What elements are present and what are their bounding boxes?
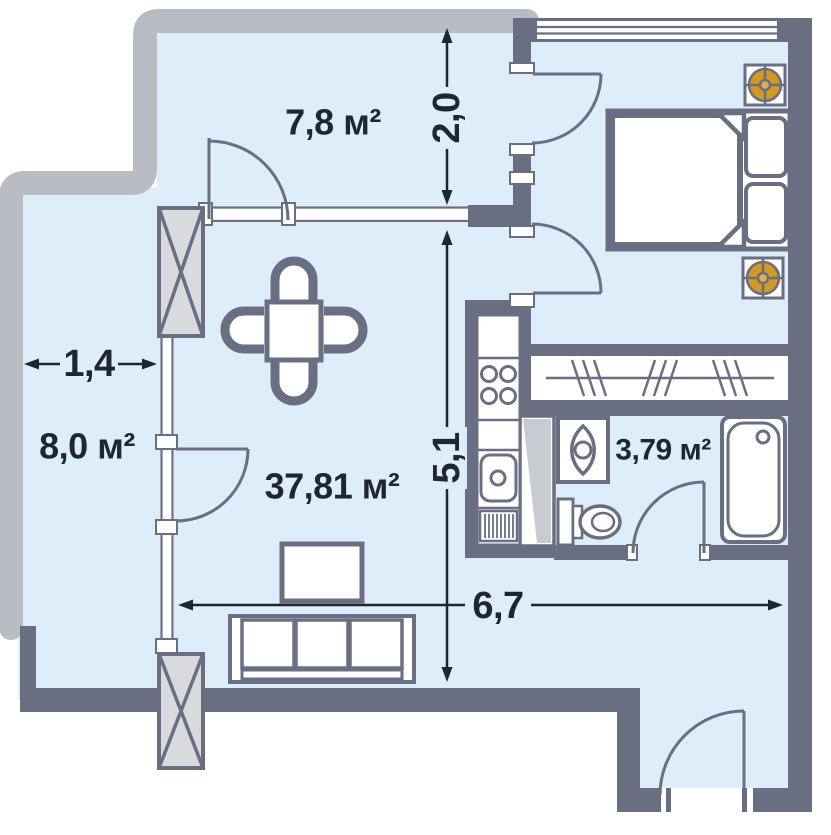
wall-jamb bbox=[510, 294, 534, 307]
wall-jamb bbox=[156, 639, 177, 653]
kitchen-unit bbox=[477, 315, 520, 545]
terrace-area-label: 7,8 м² bbox=[285, 102, 381, 143]
stove-burner bbox=[482, 389, 497, 404]
dim-label-balcony-width: 1,4 bbox=[63, 343, 115, 385]
bathtub bbox=[722, 417, 785, 542]
drainer bbox=[480, 511, 517, 541]
bedroom-window bbox=[537, 21, 777, 39]
floor-plan-svg: 2,0 5,1 6,7 1,4 7,8 м² 8,0 м² 37,81 м² bbox=[0, 0, 831, 835]
entry-floor bbox=[617, 560, 812, 800]
wall-jamb bbox=[510, 63, 534, 73]
dining-chair bbox=[275, 362, 313, 401]
wall-segment bbox=[710, 545, 812, 560]
pilaster-column-top bbox=[159, 208, 203, 336]
bathroom-area-label: 3,79 м² bbox=[615, 434, 711, 467]
stove-burner bbox=[482, 367, 497, 382]
wall-segment bbox=[513, 155, 531, 172]
dining-table bbox=[267, 302, 321, 360]
sofa-cushion bbox=[350, 620, 402, 668]
dining-chair bbox=[275, 261, 313, 300]
kitchen-sink bbox=[481, 455, 516, 501]
bathroom-sink bbox=[558, 418, 608, 482]
dim-label-living-length: 5,1 bbox=[426, 432, 468, 484]
bed-blanket bbox=[612, 115, 740, 245]
vent-shaft bbox=[520, 416, 554, 546]
pilaster-column-bottom bbox=[159, 654, 203, 768]
wall-segment bbox=[20, 688, 640, 712]
sofa bbox=[230, 616, 414, 682]
wall-jamb bbox=[510, 144, 534, 155]
wall-segment bbox=[554, 545, 627, 560]
entry-threshold bbox=[661, 788, 753, 812]
sofa-back bbox=[242, 670, 402, 679]
terrace-window-wall bbox=[160, 203, 468, 225]
living-area-label: 37,81 м² bbox=[265, 466, 400, 507]
wall-jamb bbox=[156, 435, 177, 449]
dim-label-living-width: 6,7 bbox=[472, 585, 523, 627]
dining-chair bbox=[324, 311, 363, 349]
floor-plan: 2,0 5,1 6,7 1,4 7,8 м² 8,0 м² 37,81 м² bbox=[0, 0, 831, 835]
sofa-cushion bbox=[242, 620, 294, 668]
dim-label-terrace-depth: 2,0 bbox=[426, 92, 468, 143]
stove-burner bbox=[501, 389, 516, 404]
wall-jamb bbox=[510, 226, 534, 237]
wall-jamb bbox=[510, 172, 534, 184]
tv-stand bbox=[282, 544, 362, 601]
wall-segment bbox=[468, 205, 531, 227]
wall-segment bbox=[20, 626, 36, 696]
balcony-area-label: 8,0 м² bbox=[39, 426, 135, 467]
wardrobe bbox=[531, 356, 788, 400]
wall-segment bbox=[517, 400, 812, 416]
ventilation-icon bbox=[745, 65, 785, 105]
ventilation-icon bbox=[743, 258, 783, 298]
bed-pillow bbox=[746, 118, 786, 176]
stove-burner bbox=[501, 367, 516, 382]
bed-pillow bbox=[746, 184, 786, 242]
wall-segment bbox=[513, 18, 531, 63]
dining-chair bbox=[225, 311, 264, 349]
bed bbox=[608, 111, 790, 249]
sofa-cushion bbox=[296, 620, 348, 668]
wall-jamb bbox=[156, 520, 177, 534]
